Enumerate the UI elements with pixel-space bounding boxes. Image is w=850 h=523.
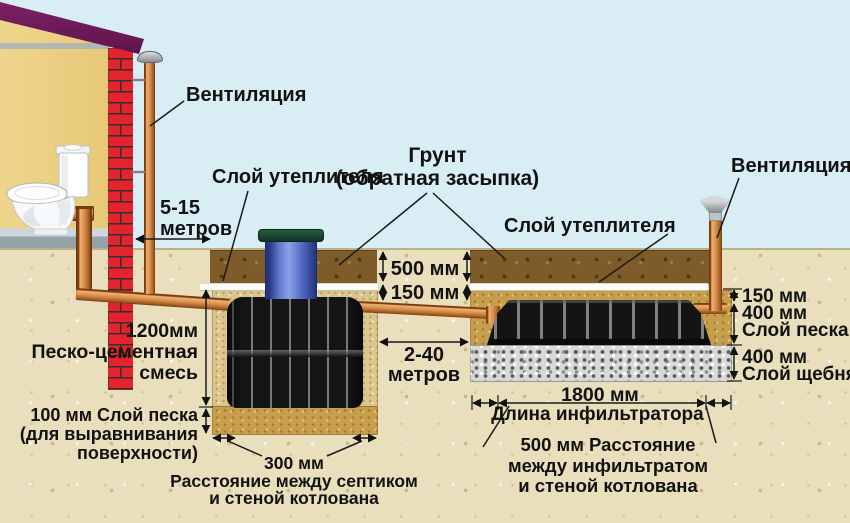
label-pipe-distance-line1: 2-40 <box>384 345 464 365</box>
label-inf-gap-line2: между инфильтратом <box>458 456 758 477</box>
label-septic-gap: 300 мм Расстояние между септиком и стено… <box>166 455 422 508</box>
label-inf-gravel: 400 мм Слой щебня <box>742 350 850 383</box>
leader-300-right <box>327 441 362 456</box>
label-sand-cement: 1200мм Песко-цементная смесь <box>20 321 198 384</box>
label-pipe-distance: 2-40 метров <box>384 345 464 385</box>
label-inf-length-caption: Длина инфильтратора <box>480 405 715 426</box>
label-soil-line2: (обратная засыпка) <box>310 167 565 190</box>
label-sand-bottom-line2: (для выравнивания <box>12 425 198 444</box>
label-vent-left: Вентиляция <box>186 85 306 107</box>
label-inf-length-value: 1800 мм <box>540 385 660 406</box>
leader-soil-right <box>433 193 504 258</box>
label-insulation-right: Слой утеплителя <box>504 216 676 238</box>
septic-installation-diagram: Вентиляция Слой утеплителя Грунт (обратн… <box>0 0 850 523</box>
label-septic-gap-value: 300 мм <box>166 455 422 473</box>
label-inf-gap-line3: и стеной котлована <box>458 476 758 497</box>
label-inf-gap-line1: 500 мм Расстояние <box>458 435 758 456</box>
label-sand-bottom-line1: 100 мм Слой песка <box>12 406 198 425</box>
leader-vent-left <box>150 101 184 126</box>
label-soil-backfill: Грунт (обратная засыпка) <box>310 144 565 190</box>
label-house-distance: 5-15 метров <box>160 198 232 240</box>
label-sand-cement-line1: Песко-цементная <box>20 342 198 363</box>
label-house-distance-line1: 5-15 <box>160 198 232 219</box>
leader-300-left <box>228 441 262 456</box>
label-sand-cement-line2: смесь <box>20 363 198 384</box>
label-septic-gap-line2: и стеной котлована <box>166 490 422 508</box>
label-soil-line1: Грунт <box>310 144 565 167</box>
label-septic-depth: 1200мм <box>20 321 198 342</box>
label-inf-gravel-line2: Слой щебня <box>742 367 850 384</box>
label-inf-gap: 500 мм Расстояние между инфильтратом и с… <box>458 435 758 497</box>
label-inf-sand: 400 мм Слой песка <box>742 306 849 339</box>
leader-insulation-right <box>599 234 668 282</box>
label-vent-right: Вентиляция <box>731 156 850 178</box>
label-depth-500: 500 мм <box>384 259 466 281</box>
label-house-distance-line2: метров <box>160 219 232 240</box>
label-pipe-distance-line2: метров <box>384 365 464 385</box>
label-depth-150: 150 мм <box>384 283 466 305</box>
label-inf-sand-line2: Слой песка <box>742 323 849 340</box>
leader-vent-right <box>717 178 739 238</box>
